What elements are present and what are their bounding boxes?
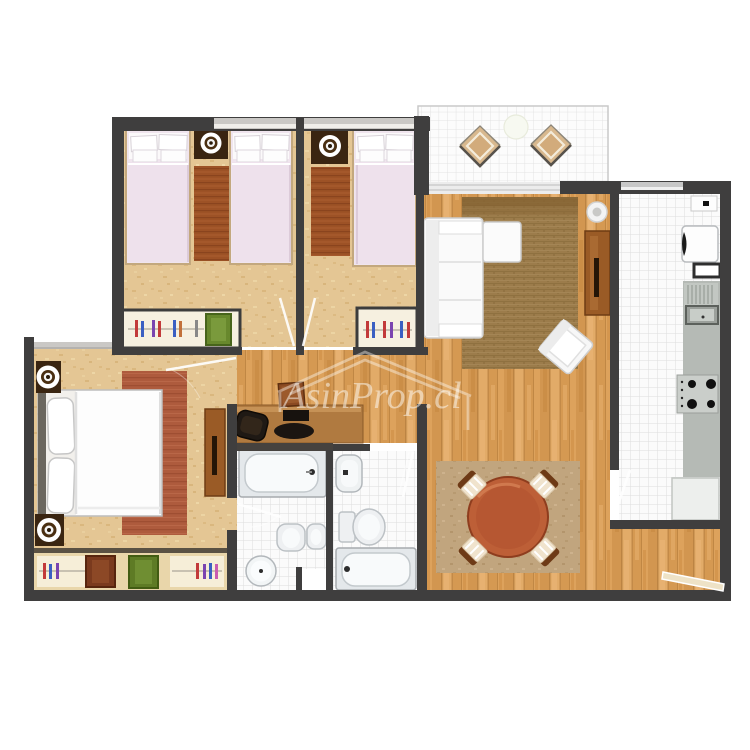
svg-text:AsinProp.cl: AsinProp.cl — [279, 375, 461, 417]
